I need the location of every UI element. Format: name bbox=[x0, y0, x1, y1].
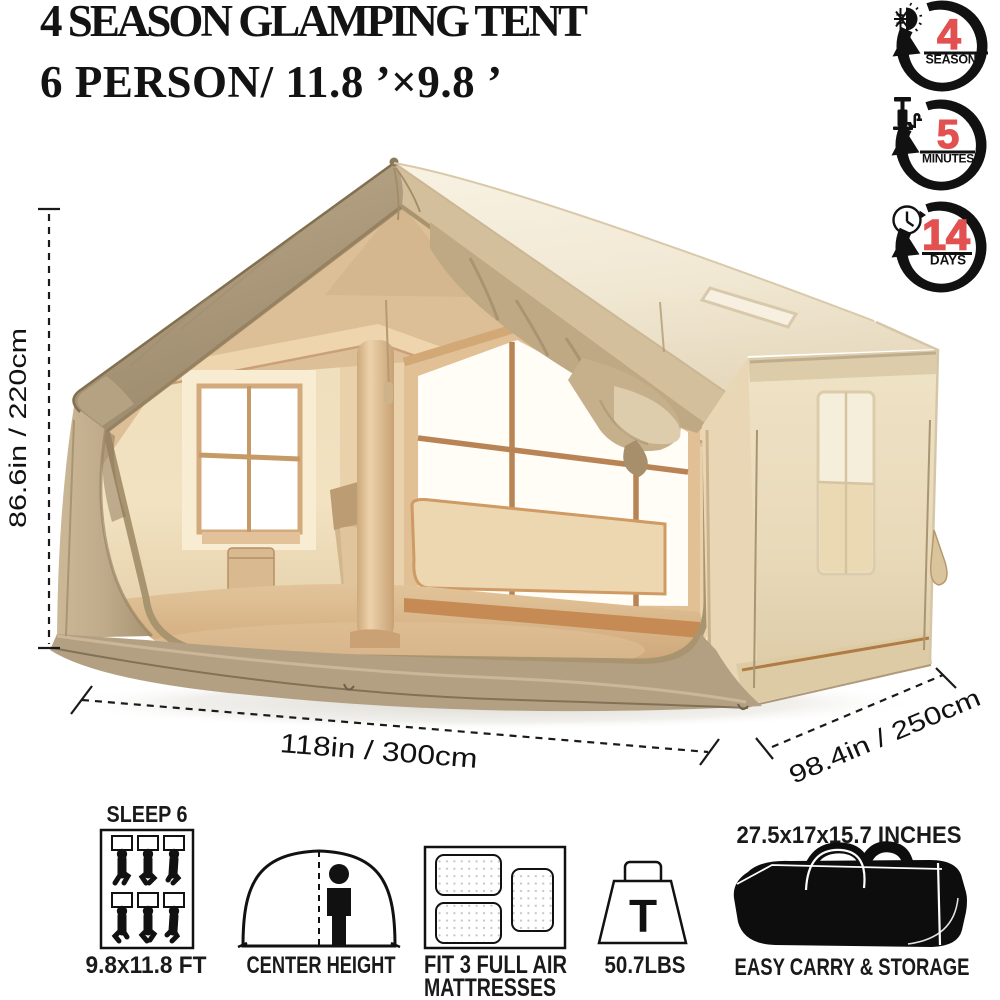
svg-text:CENTER HEIGHT: CENTER HEIGHT bbox=[247, 952, 396, 979]
svg-text:118in / 300cm: 118in / 300cm bbox=[279, 728, 479, 774]
svg-text:DAYS: DAYS bbox=[930, 253, 966, 268]
svg-text:MINUTES: MINUTES bbox=[922, 152, 974, 166]
svg-text:T: T bbox=[629, 890, 657, 942]
svg-text:MATTRESSES: MATTRESSES bbox=[424, 974, 556, 1000]
svg-text:6 PERSON/ 11.8 ’×9.8 ’: 6 PERSON/ 11.8 ’×9.8 ’ bbox=[40, 57, 502, 107]
svg-text:SLEEP 6: SLEEP 6 bbox=[107, 801, 188, 827]
svg-text:50.7LBS: 50.7LBS bbox=[605, 952, 686, 979]
svg-text:86.6in / 220cm: 86.6in / 220cm bbox=[5, 328, 32, 528]
svg-text:9.8x11.8 FT: 9.8x11.8 FT bbox=[86, 952, 207, 979]
svg-text:SEASON: SEASON bbox=[926, 53, 977, 67]
svg-text:EASY CARRY & STORAGE: EASY CARRY & STORAGE bbox=[735, 954, 970, 981]
svg-text:4 SEASON GLAMPING TENT: 4 SEASON GLAMPING TENT bbox=[40, 0, 588, 46]
svg-text:5: 5 bbox=[937, 111, 960, 157]
